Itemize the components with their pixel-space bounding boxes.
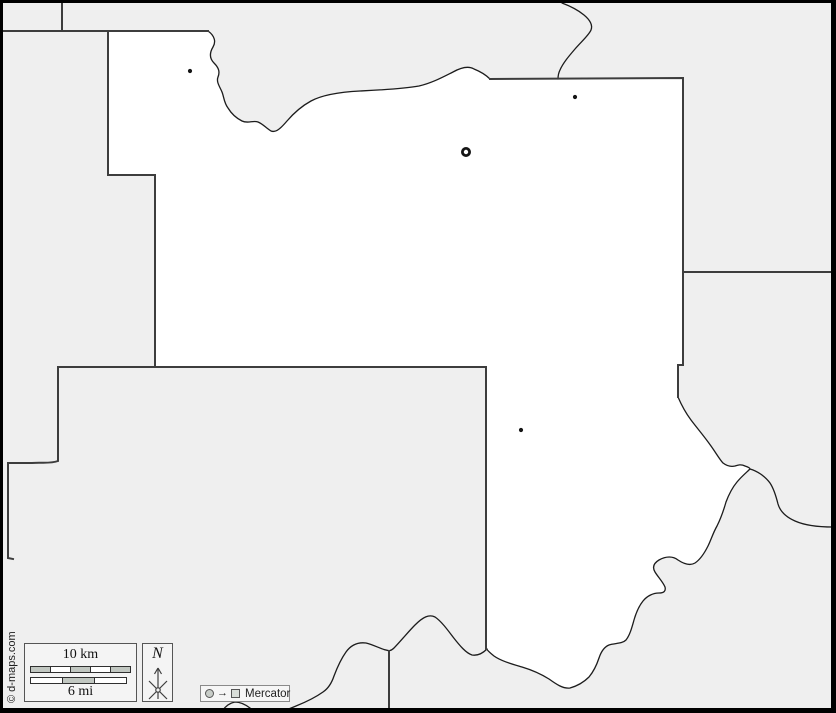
scale-km-label: 10 km <box>25 647 136 662</box>
map-frame-top <box>0 0 836 3</box>
county-shape <box>108 31 750 688</box>
admin-line-south-west <box>58 367 486 649</box>
river-line-south <box>281 616 487 711</box>
map-frame-bottom <box>0 708 836 713</box>
map-frame-right <box>831 0 836 713</box>
town-dot-marker <box>519 428 523 432</box>
map-frame-left <box>0 0 3 713</box>
globe-circle-icon <box>205 689 214 698</box>
arrow-right-icon: → <box>217 689 228 698</box>
river-line-east-fork <box>750 469 833 527</box>
scale-bar-segment <box>31 667 50 672</box>
river-line-north <box>558 3 592 79</box>
town-dot-marker <box>573 95 577 99</box>
scale-bar-segment <box>90 667 110 672</box>
scale-bar-segment <box>62 678 94 683</box>
county-seat-ring-marker <box>462 148 469 155</box>
scale-bar-segment <box>110 667 130 672</box>
projection-label: Mercator <box>243 688 290 700</box>
copyright-watermark: © d-maps.com <box>6 631 18 703</box>
projection-badge: → Mercator <box>200 685 290 702</box>
scale-bar-segment <box>70 667 90 672</box>
north-arrow-widget: N <box>142 643 173 702</box>
map-page: 10 km 6 mi N → Mercator © d-maps.com <box>0 0 836 713</box>
scale-bar-segment <box>31 678 62 683</box>
scale-bar-segment <box>50 667 70 672</box>
north-label: N <box>143 645 172 663</box>
scale-mi-label: 6 mi <box>25 684 136 699</box>
map-canvas <box>0 0 836 713</box>
scale-mi-bar <box>30 677 127 684</box>
town-dot-marker <box>188 69 192 73</box>
scale-bar-segment <box>94 678 126 683</box>
scale-bar: 10 km 6 mi <box>24 643 137 702</box>
flat-map-square-icon <box>231 689 240 698</box>
admin-line-far-west <box>8 367 58 559</box>
compass-star-icon <box>145 664 171 701</box>
scale-km-bar <box>30 666 131 673</box>
